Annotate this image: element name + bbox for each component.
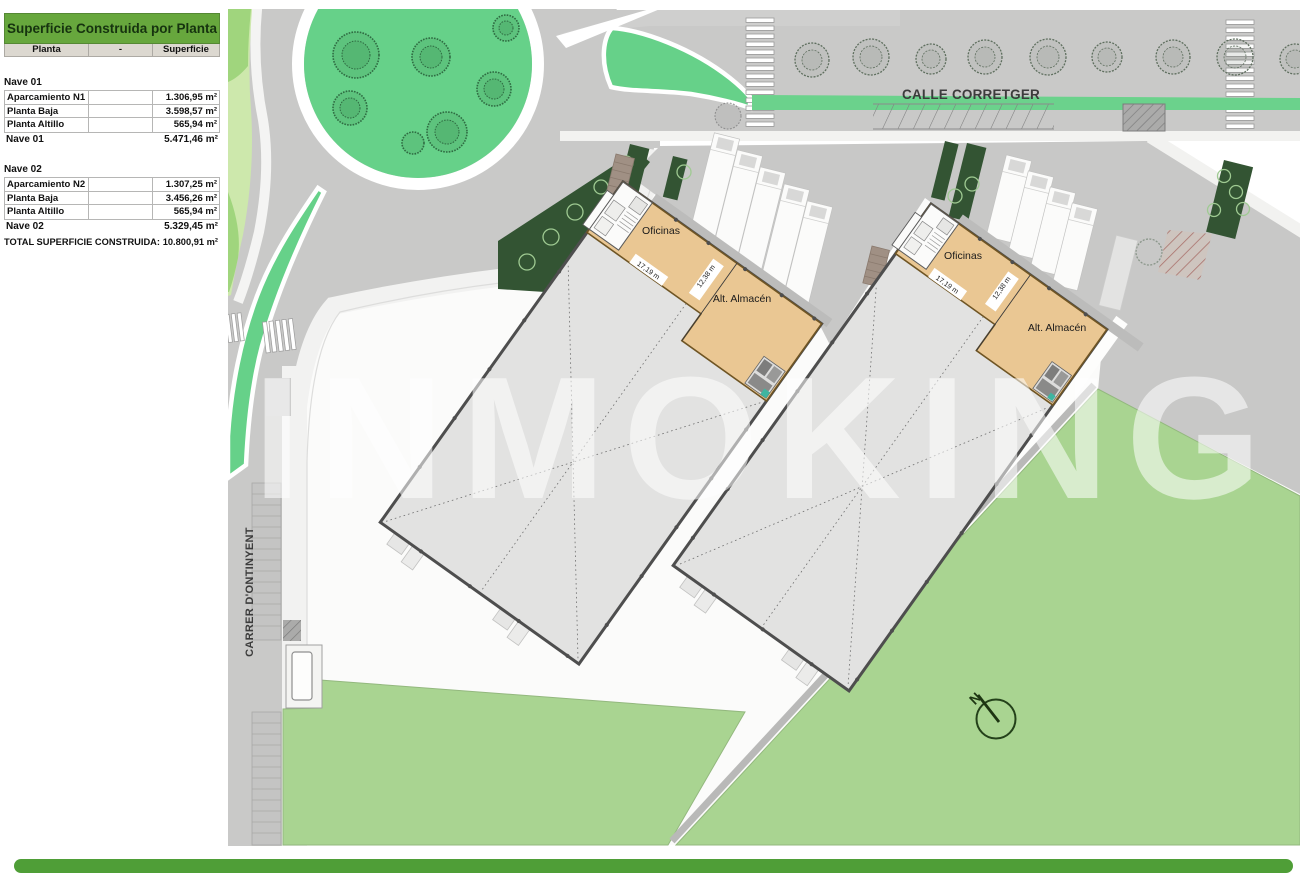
svg-text:CALLE CORRETGER: CALLE CORRETGER	[902, 87, 1040, 102]
svg-text:Oficinas: Oficinas	[642, 225, 680, 237]
svg-text:Alt. Almacén: Alt. Almacén	[713, 293, 772, 305]
svg-text:Alt. Almacén: Alt. Almacén	[1028, 322, 1087, 334]
svg-text:INMOKING: INMOKING	[253, 340, 1278, 535]
svg-text:CARRER D'ONTINYENT: CARRER D'ONTINYENT	[244, 527, 256, 657]
svg-text:Oficinas: Oficinas	[944, 250, 982, 262]
